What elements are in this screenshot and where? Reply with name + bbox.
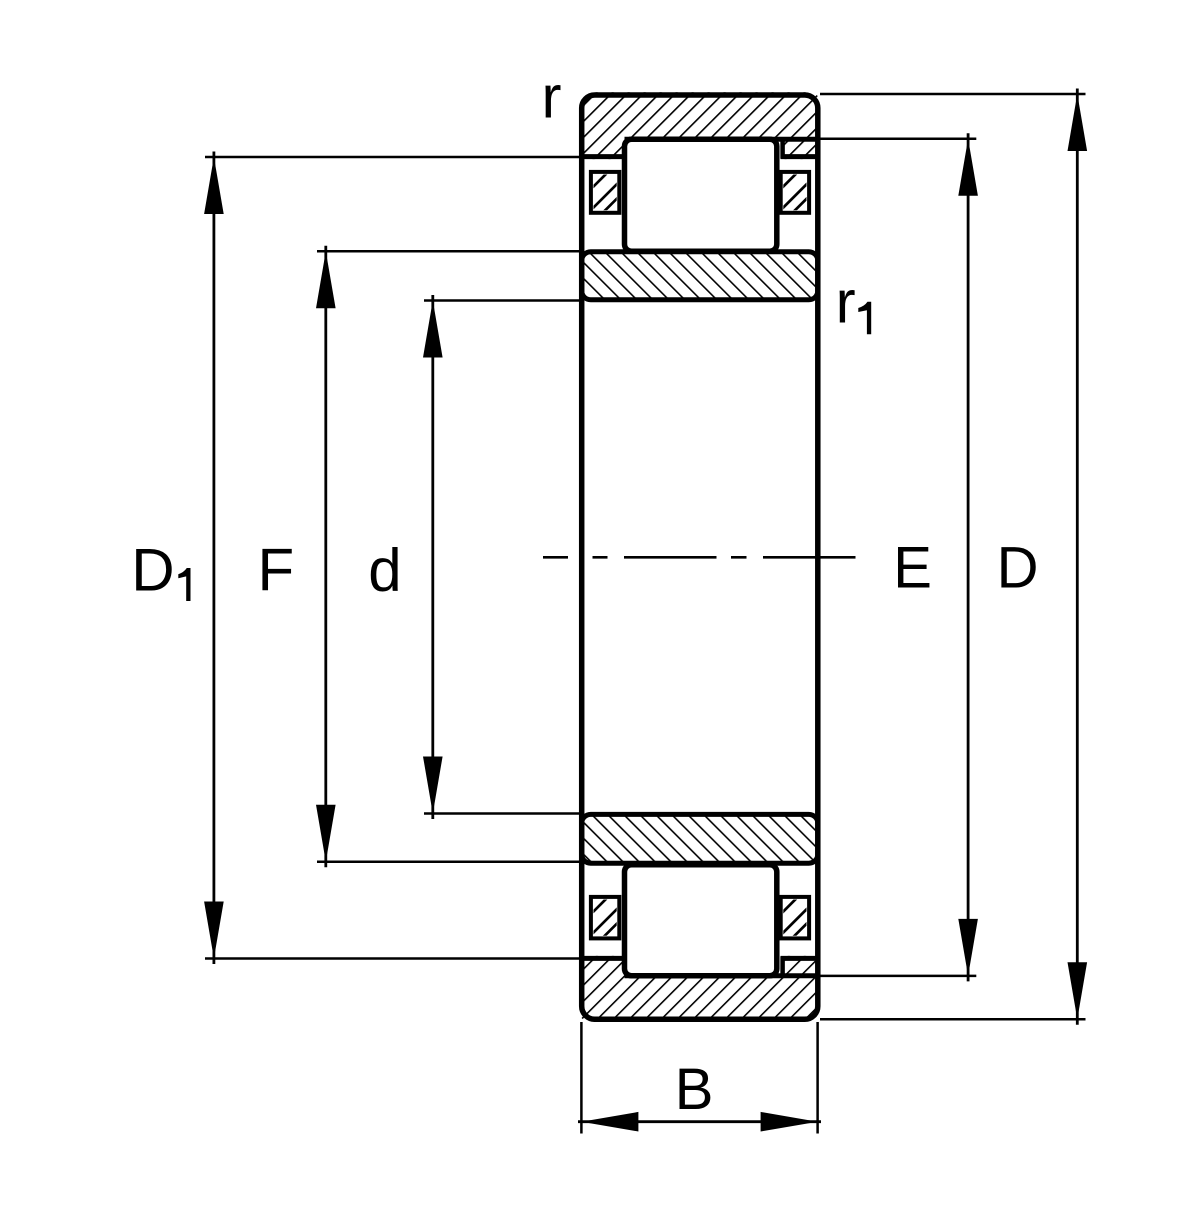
- svg-text:r: r: [836, 269, 856, 336]
- svg-text:B: B: [675, 1057, 714, 1122]
- svg-text:d: d: [368, 537, 401, 604]
- svg-text:F: F: [258, 537, 295, 604]
- svg-text:r: r: [542, 64, 562, 131]
- svg-text:D: D: [997, 536, 1039, 601]
- svg-text:D: D: [131, 537, 174, 604]
- svg-text:E: E: [893, 536, 932, 601]
